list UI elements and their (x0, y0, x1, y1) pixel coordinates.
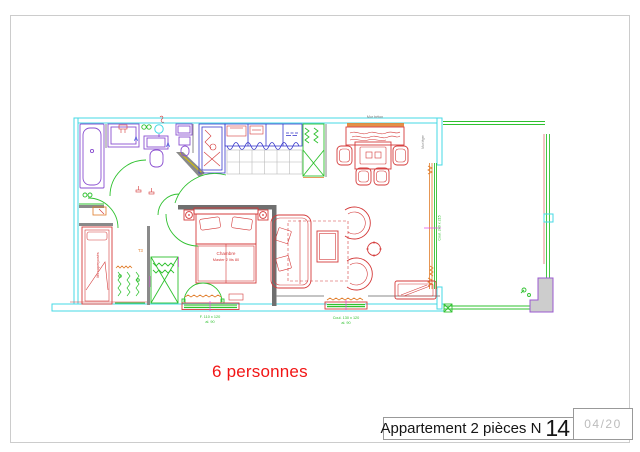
plants-icon (521, 288, 531, 297)
french-door (182, 283, 224, 303)
dining-chairs (337, 146, 408, 185)
wardrobe (151, 257, 179, 303)
dining-area: Mur béton (337, 115, 408, 185)
bench-shoes (229, 294, 243, 300)
type-tag-label: T3 (138, 248, 144, 253)
ceiling-light-icon (155, 125, 163, 133)
rug (288, 221, 348, 281)
section-marker-a2: A (166, 143, 170, 149)
bunk-beds-label: lits superposés (96, 252, 100, 277)
appliance-label-marks (286, 133, 298, 136)
terrace-area (443, 122, 553, 313)
fridge-column (199, 124, 225, 173)
concrete-pillar (530, 278, 553, 312)
bedroom-window (182, 301, 239, 311)
floor-tiles (227, 150, 302, 174)
sliding-window-label: Coul. 240 x 215 (438, 215, 442, 240)
door-stop-marks (136, 186, 154, 194)
sofa (271, 215, 311, 288)
kitchen-area (199, 124, 324, 178)
dining-table (355, 142, 391, 169)
living-window-size-label: Coul. 130 x 120 (333, 316, 360, 320)
apartment-number: 14 (545, 417, 569, 440)
drying-rack (115, 272, 145, 303)
plan-sheet: A A (0, 0, 640, 452)
bathtub (80, 124, 104, 188)
title-block: Appartement 2 pièces N 14 04/20 (383, 408, 632, 440)
sheet-number: 04/20 (573, 408, 633, 440)
capacity-label: 6 personnes (212, 362, 308, 382)
bunk-room-area: lits superposés T3 (82, 227, 145, 304)
armchair-bottom (347, 258, 372, 290)
hall-closet (303, 124, 324, 178)
apartment-title: Appartement 2 pièces N (380, 420, 541, 437)
living-window-height-label: al. 90 (341, 321, 350, 325)
wall-right-label: Mur léger (421, 134, 425, 148)
bedroom-window-height-label: al. 90 (205, 320, 214, 324)
side-table (366, 241, 382, 257)
storage-bench (395, 281, 436, 299)
interior-walls (70, 124, 440, 306)
coffee-table (317, 231, 338, 262)
title-block-main-cell: Appartement 2 pièces N 14 (383, 417, 574, 440)
bathroom-area: A A (80, 116, 192, 215)
bedroom-window-size-label: F. 110 x 120 (200, 315, 220, 319)
armchair-top (345, 207, 370, 239)
section-marker-a: A (134, 137, 138, 143)
wall-top-label: Mur béton (367, 115, 383, 119)
cooktop (227, 126, 246, 136)
bedroom-name-label: Chambre (217, 251, 236, 256)
wall-hatch (347, 123, 404, 127)
bedroom-desc-label: Master 2 lits 80 (213, 257, 240, 262)
floor-plan: A A (0, 0, 640, 452)
